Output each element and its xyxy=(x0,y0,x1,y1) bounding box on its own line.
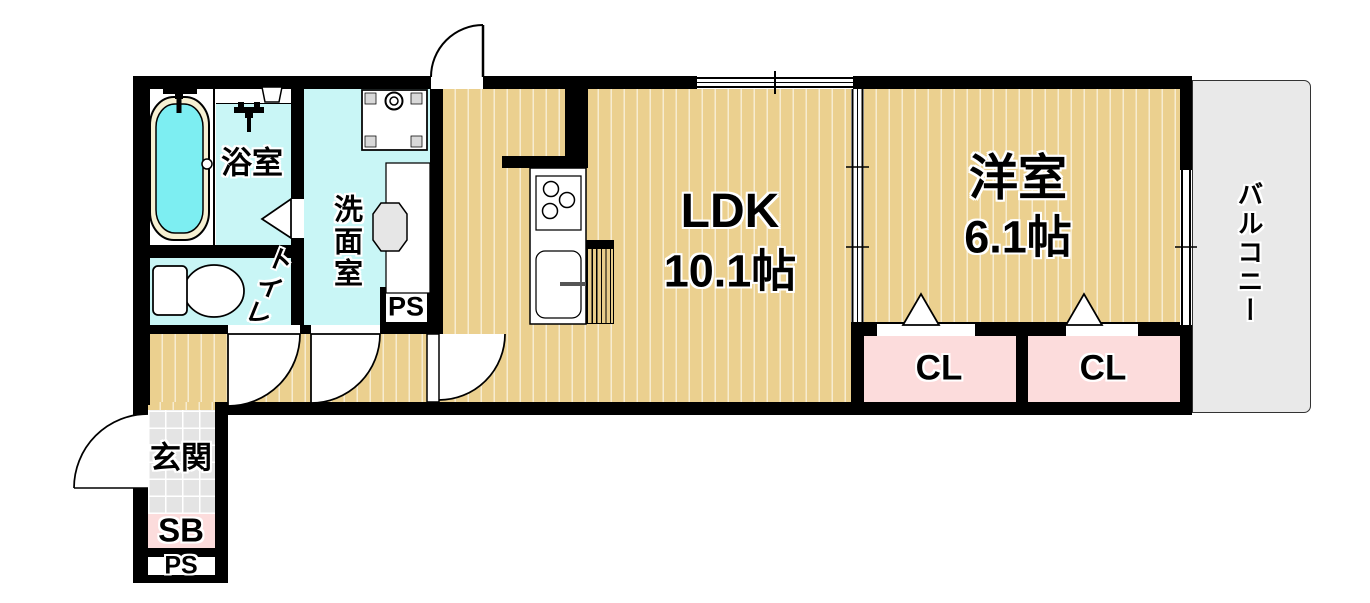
wall-entrance-left-top xyxy=(133,402,148,414)
closet2-door-opening xyxy=(1066,324,1138,336)
ldk-size-label: 10.1帖 xyxy=(664,249,797,294)
wall-entrance-right xyxy=(215,402,228,583)
hallway-floor xyxy=(150,333,443,402)
wall-top xyxy=(133,76,1192,89)
western-room-label: 洋室 xyxy=(969,155,1067,204)
closet1-label: CL xyxy=(916,351,963,386)
bath-label: 浴室 xyxy=(221,148,283,179)
wall-right-upper xyxy=(1180,89,1192,170)
bath-divider-line xyxy=(213,89,215,245)
washroom-label: 洗面室 xyxy=(331,194,360,290)
wall-right-lower xyxy=(1180,325,1192,415)
bath-door-opening xyxy=(291,199,304,238)
closet2-label: CL xyxy=(1080,351,1127,386)
floor-plan: 浴室 洗面室 トイレ LDK 10.1帖 洋室 6.1帖 CL CL バルコニー… xyxy=(0,0,1370,603)
hallway-floor-strip xyxy=(148,402,215,410)
back-door-swing xyxy=(431,25,483,77)
kitchen-counter-hatch xyxy=(586,248,614,324)
wall-closet-middle xyxy=(1016,336,1028,402)
entrance-door-leaf xyxy=(133,414,148,488)
washroom-door-opening xyxy=(311,325,380,334)
top-window xyxy=(697,76,853,89)
closet1-door-opening xyxy=(877,324,975,336)
wall-kitchen-horizontal xyxy=(502,156,588,168)
sliding-door-ldk-western xyxy=(851,89,864,322)
wall-entrance-left-bottom xyxy=(133,488,148,583)
western-room-floor xyxy=(864,89,1180,322)
wall-left xyxy=(133,76,150,405)
balcony-label: バルコニー xyxy=(1236,181,1262,326)
ldk-label: LDK xyxy=(681,188,780,236)
entrance-label: 玄関 xyxy=(150,443,212,474)
shoe-box-label: SB xyxy=(158,514,204,547)
pipe-space-upper-label: PS xyxy=(388,294,424,321)
pipe-space-lower-label: PS xyxy=(164,554,197,579)
wall-bottom xyxy=(215,402,1192,415)
western-room-size-label: 6.1帖 xyxy=(964,215,1072,260)
balcony-window xyxy=(1180,170,1192,325)
top-door-opening xyxy=(431,76,483,89)
